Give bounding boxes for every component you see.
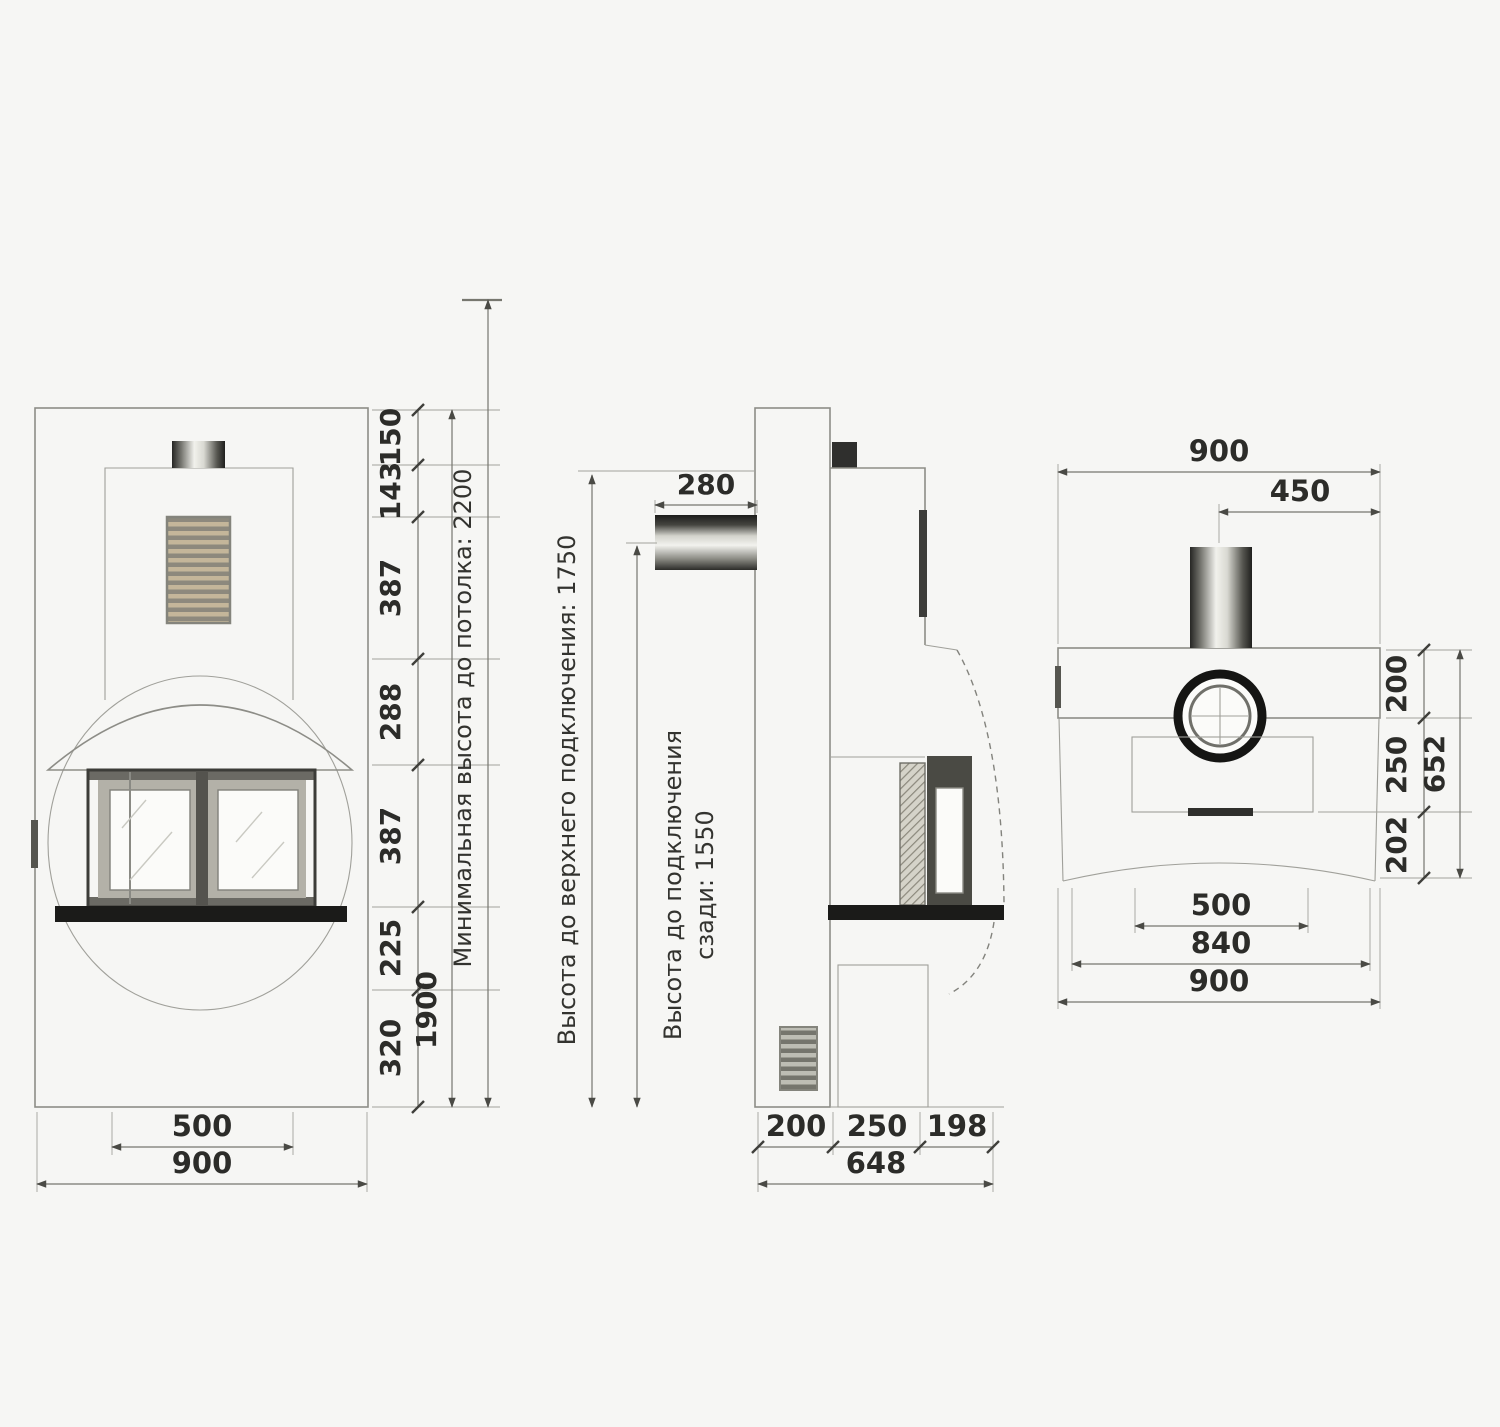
dim-label-900-front: 900	[172, 1146, 233, 1180]
dim-label-500-front: 500	[172, 1109, 233, 1143]
dim-label-280: 280	[677, 468, 735, 501]
dim-label-200-top: 200	[1380, 655, 1413, 713]
dim-label-387a: 387	[374, 559, 407, 617]
dim-label-648: 648	[846, 1146, 907, 1180]
dim-label-143: 143	[374, 462, 407, 520]
top-connection-note-label: Высота до верхнего подключения: 1750	[553, 535, 581, 1046]
dim-label-202-top: 202	[1380, 816, 1413, 874]
firebrick-back	[900, 763, 925, 905]
dim-label-387b: 387	[374, 807, 407, 865]
dim-label-652: 652	[1418, 735, 1451, 793]
rear-connection-note-line2: сзади: 1550	[691, 810, 719, 960]
vent-grille-front	[167, 517, 230, 623]
paper-background	[0, 0, 1500, 1427]
dim-label-225: 225	[374, 919, 407, 977]
chimney-pipe-top	[1190, 547, 1252, 648]
flue-collar-ring	[1178, 674, 1262, 758]
dim-label-1900: 1900	[410, 971, 443, 1049]
ceiling-note-label: Минимальная высота до потолка: 2200	[449, 469, 477, 968]
hearth-shelf-front	[55, 906, 347, 922]
dim-label-900-bottom: 900	[1189, 964, 1250, 998]
technical-drawing-page: 150 143 387 288 387 225 320 1900 Минимал…	[0, 0, 1500, 1427]
panel-mark	[1055, 666, 1061, 708]
dim-label-250-side: 250	[847, 1109, 908, 1143]
glass-doors-front	[88, 770, 315, 907]
dim-label-200-side: 200	[766, 1109, 827, 1143]
dim-label-288: 288	[374, 683, 407, 741]
door-left-glass	[110, 790, 190, 890]
top-flue-stub	[832, 442, 857, 468]
door-plan-mark	[1188, 808, 1253, 816]
vent-grille-side	[780, 1027, 817, 1090]
fireplace-dimension-drawing: 150 143 387 288 387 225 320 1900 Минимал…	[0, 0, 1500, 1427]
dim-label-840: 840	[1191, 926, 1252, 960]
rear-connection-note-line1: Высота до подключения	[659, 730, 687, 1040]
rear-connection-slot	[919, 510, 927, 617]
dim-label-320: 320	[374, 1019, 407, 1077]
wall-mark	[31, 820, 38, 868]
hearth-shelf-side	[828, 905, 1004, 920]
dim-label-450: 450	[1270, 474, 1331, 508]
dim-label-500-top: 500	[1191, 888, 1252, 922]
door-side-glass	[936, 788, 963, 893]
dim-label-150: 150	[374, 408, 407, 466]
dim-label-250-top: 250	[1380, 736, 1413, 794]
chimney-pipe-front	[172, 441, 225, 468]
dim-label-198-side: 198	[927, 1109, 988, 1143]
rear-flue-pipe	[655, 515, 757, 570]
door-right-glass	[218, 790, 298, 890]
dim-label-900-top: 900	[1189, 434, 1250, 468]
door-center-stile	[196, 772, 208, 905]
